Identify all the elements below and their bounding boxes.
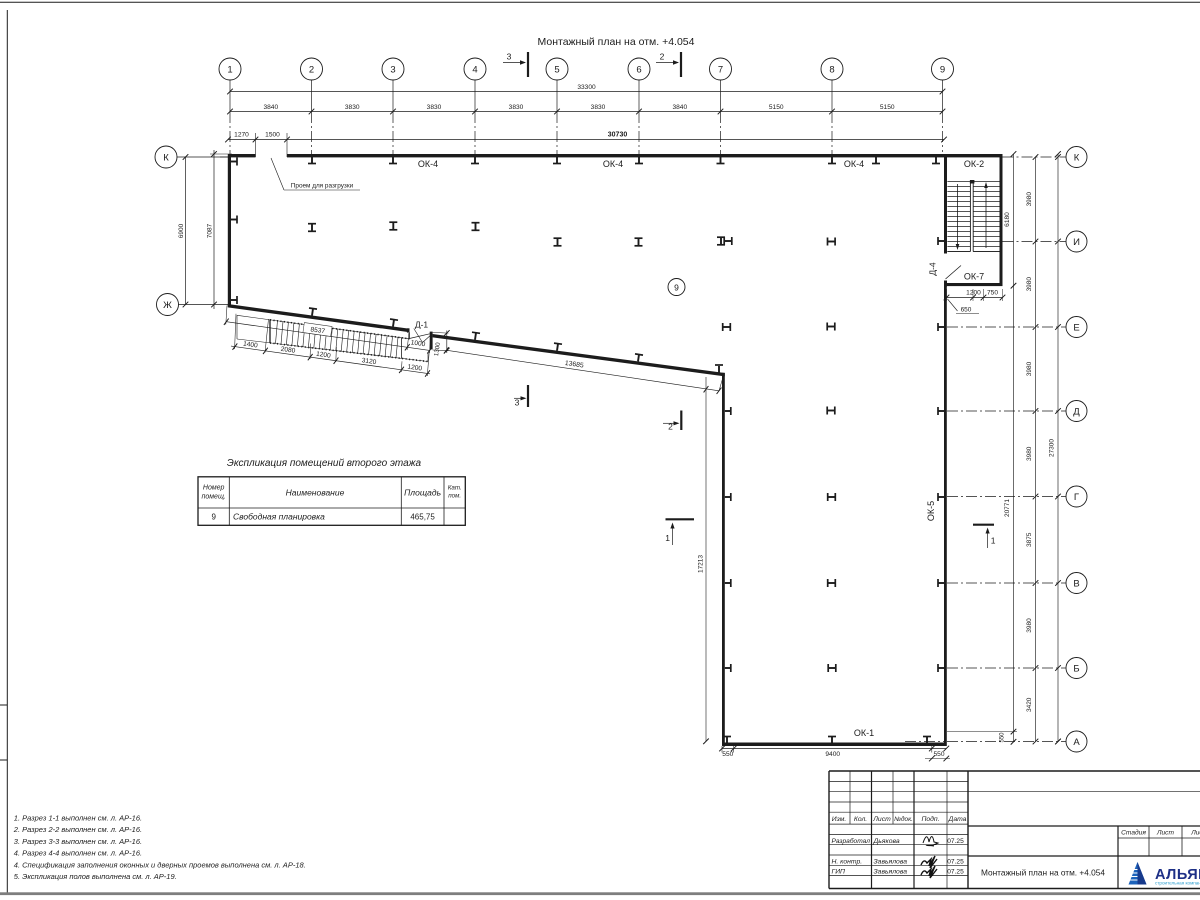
- svg-text:ГИП: ГИП: [832, 869, 846, 876]
- svg-text:3875: 3875: [1026, 532, 1033, 547]
- svg-text:4: 4: [472, 64, 477, 75]
- svg-text:5: 5: [554, 64, 559, 75]
- svg-text:3830: 3830: [591, 104, 606, 111]
- svg-text:5150: 5150: [769, 104, 784, 111]
- svg-text:помещ.: помещ.: [202, 494, 226, 501]
- svg-text:ОК-2: ОК-2: [964, 159, 984, 169]
- svg-text:Кат.: Кат.: [448, 485, 462, 492]
- svg-text:пом.: пом.: [448, 493, 461, 500]
- svg-text:Изм.: Изм.: [832, 816, 847, 823]
- svg-text:1. Разрез 1-1 выполнен см. л.: 1. Разрез 1-1 выполнен см. л. АР-16.: [14, 813, 142, 822]
- svg-text:6180: 6180: [1004, 212, 1011, 227]
- svg-text:ОК-4: ОК-4: [603, 159, 623, 169]
- svg-text:Номер: Номер: [203, 485, 225, 492]
- svg-text:Экспликация помещений второго: Экспликация помещений второго этажа: [227, 458, 422, 469]
- svg-text:3420: 3420: [1026, 697, 1033, 712]
- svg-text:2: 2: [309, 64, 314, 75]
- svg-text:3. Разрез 3-3 выполнен см. л.: 3. Разрез 3-3 выполнен см. л. АР-16.: [14, 837, 142, 846]
- svg-text:ОК-5: ОК-5: [926, 501, 936, 521]
- svg-text:465,75: 465,75: [410, 513, 435, 522]
- svg-text:07.25: 07.25: [947, 859, 964, 866]
- svg-text:3840: 3840: [672, 104, 687, 111]
- svg-text:К: К: [163, 152, 169, 163]
- svg-text:27300: 27300: [1049, 439, 1056, 457]
- svg-text:1270: 1270: [234, 132, 249, 139]
- svg-text:ОК-4: ОК-4: [418, 159, 438, 169]
- svg-text:3980: 3980: [1026, 192, 1033, 207]
- svg-text:33300: 33300: [577, 84, 596, 91]
- svg-text:Дьякова: Дьякова: [873, 838, 900, 845]
- svg-text:1: 1: [665, 533, 670, 543]
- svg-text:Ж: Ж: [163, 300, 172, 311]
- svg-text:ОК-4: ОК-4: [844, 159, 864, 169]
- svg-text:Лист: Лист: [872, 816, 891, 823]
- svg-text:8: 8: [829, 64, 834, 75]
- svg-text:550: 550: [933, 751, 944, 758]
- svg-text:3830: 3830: [427, 104, 442, 111]
- svg-text:1200: 1200: [966, 290, 981, 297]
- svg-text:3980: 3980: [1026, 446, 1033, 461]
- svg-text:Стадия: Стадия: [1121, 829, 1146, 837]
- svg-text:Подп.: Подп.: [921, 815, 939, 823]
- svg-text:9: 9: [211, 513, 216, 522]
- svg-text:Монтажный план на отм. +4.054: Монтажный план на отм. +4.054: [981, 868, 1105, 878]
- svg-text:3830: 3830: [509, 104, 524, 111]
- svg-text:1500: 1500: [265, 132, 280, 139]
- svg-text:7: 7: [718, 64, 723, 75]
- svg-text:650: 650: [961, 307, 972, 314]
- svg-text:3830: 3830: [345, 104, 360, 111]
- svg-text:ОК-1: ОК-1: [854, 728, 874, 738]
- svg-text:6900: 6900: [178, 223, 185, 238]
- svg-text:А: А: [1073, 737, 1080, 748]
- svg-text:3: 3: [515, 398, 520, 408]
- svg-text:Д-4: Д-4: [928, 262, 938, 276]
- svg-text:Е: Е: [1073, 322, 1079, 333]
- svg-text:9400: 9400: [825, 751, 840, 758]
- svg-text:07.25: 07.25: [947, 869, 964, 876]
- svg-text:4. Разрез 4-4 выполнен см. л.: 4. Разрез 4-4 выполнен см. л. АР-16.: [14, 849, 142, 858]
- svg-text:3840: 3840: [263, 104, 278, 111]
- svg-text:550: 550: [1000, 732, 1006, 743]
- svg-text:Наименование: Наименование: [286, 488, 345, 498]
- svg-text:3980: 3980: [1026, 277, 1033, 292]
- svg-text:3980: 3980: [1026, 361, 1033, 376]
- svg-text:Б: Б: [1073, 663, 1079, 674]
- svg-text:Разработал: Разработал: [832, 837, 871, 845]
- svg-text:750: 750: [987, 290, 998, 297]
- svg-text:2. Разрез 2-2 выполнен см. л.: 2. Разрез 2-2 выполнен см. л. АР-16.: [13, 825, 142, 834]
- svg-text:4. Спецификация заполнения око: 4. Спецификация заполнения оконных и две…: [14, 860, 306, 869]
- svg-text:Д: Д: [1073, 406, 1080, 417]
- svg-text:Завьялова: Завьялова: [874, 859, 908, 866]
- svg-text:Свободная планировка: Свободная планировка: [233, 512, 325, 522]
- svg-text:Площадь: Площадь: [404, 488, 441, 498]
- svg-text:Д-1: Д-1: [415, 320, 429, 330]
- svg-text:3: 3: [390, 64, 395, 75]
- svg-text:Г: Г: [1074, 492, 1079, 503]
- svg-text:5. Экспликация полов выполнена: 5. Экспликация полов выполнена см. л. АР…: [14, 872, 177, 881]
- svg-text:Завьялова: Завьялова: [874, 869, 908, 876]
- svg-text:Монтажный план на отм. +4.054: Монтажный план на отм. +4.054: [538, 36, 695, 48]
- svg-text:5150: 5150: [880, 104, 895, 111]
- svg-text:Кол.: Кол.: [854, 816, 867, 823]
- svg-text:20771: 20771: [1004, 499, 1011, 517]
- svg-text:Дата: Дата: [948, 816, 967, 823]
- svg-text:ОК-7: ОК-7: [964, 272, 984, 282]
- svg-text:9: 9: [674, 282, 679, 292]
- svg-text:строительная компания: строительная компания: [1155, 881, 1200, 886]
- svg-text:2: 2: [668, 422, 673, 432]
- svg-text:Лис: Лис: [1190, 830, 1200, 837]
- svg-text:6: 6: [636, 64, 641, 75]
- svg-text:В: В: [1073, 578, 1079, 589]
- svg-text:1: 1: [991, 536, 996, 546]
- svg-text:550: 550: [722, 751, 733, 758]
- svg-text:Лист: Лист: [1156, 830, 1174, 837]
- svg-text:3: 3: [507, 52, 512, 62]
- svg-text:3980: 3980: [1026, 618, 1033, 633]
- svg-text:№док.: №док.: [894, 815, 913, 823]
- svg-text:К: К: [1074, 152, 1080, 163]
- svg-text:17213: 17213: [698, 555, 705, 573]
- svg-text:07.25: 07.25: [947, 838, 964, 845]
- svg-text:7087: 7087: [207, 223, 214, 238]
- svg-text:1: 1: [227, 64, 232, 75]
- svg-text:2: 2: [660, 52, 665, 62]
- svg-text:Проем для разгрузки: Проем для разгрузки: [291, 183, 354, 190]
- svg-text:9: 9: [940, 64, 945, 75]
- svg-text:Н. контр.: Н. контр.: [832, 859, 863, 866]
- svg-text:30730: 30730: [608, 132, 628, 139]
- svg-text:И: И: [1073, 237, 1080, 248]
